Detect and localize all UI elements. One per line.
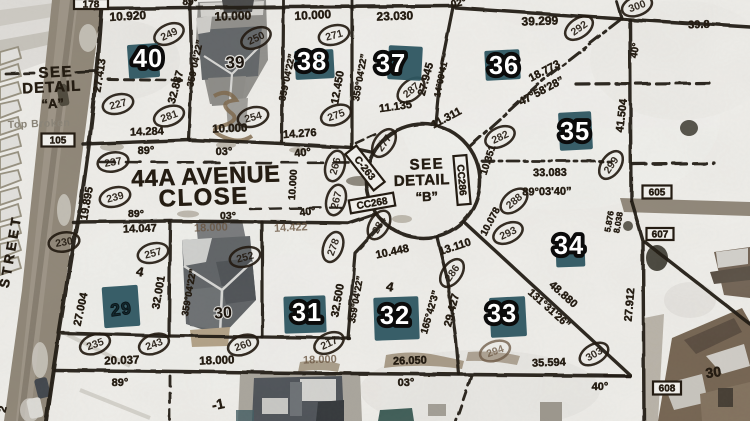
svg-text:30: 30 <box>214 304 233 322</box>
svg-text:40: 40 <box>133 45 163 73</box>
svg-text:03°: 03° <box>398 377 415 389</box>
svg-text:39: 39 <box>225 53 245 73</box>
svg-text:35.594: 35.594 <box>532 356 567 369</box>
svg-text:14.276: 14.276 <box>283 127 317 141</box>
svg-text:18.000: 18.000 <box>199 354 235 367</box>
svg-text:10.000: 10.000 <box>294 7 332 23</box>
svg-text:“A”: “A” <box>41 95 64 111</box>
svg-text:DETAIL: DETAIL <box>22 77 82 97</box>
svg-text:33: 33 <box>487 300 517 328</box>
svg-text:32: 32 <box>380 302 410 330</box>
svg-text:14.047: 14.047 <box>123 222 157 235</box>
svg-text:20.037: 20.037 <box>104 354 140 367</box>
svg-text:18.000: 18.000 <box>303 353 337 366</box>
svg-text:14.284: 14.284 <box>130 125 165 138</box>
svg-text:26.050: 26.050 <box>393 354 427 367</box>
svg-text:89°: 89° <box>138 145 155 157</box>
svg-text:35: 35 <box>560 118 590 146</box>
svg-text:39.8: 39.8 <box>688 19 710 32</box>
svg-text:608: 608 <box>659 384 676 395</box>
svg-text:10.000: 10.000 <box>287 169 300 201</box>
svg-text:89°: 89° <box>182 0 197 8</box>
svg-text:31: 31 <box>292 299 322 327</box>
svg-text:89°: 89° <box>112 377 129 389</box>
svg-text:605: 605 <box>649 188 666 199</box>
svg-text:14.422: 14.422 <box>274 221 308 235</box>
svg-text:03°: 03° <box>220 210 236 222</box>
svg-text:89°: 89° <box>128 208 144 220</box>
svg-text:40°: 40° <box>299 205 316 219</box>
svg-text:37: 37 <box>376 50 406 78</box>
svg-text:33.083: 33.083 <box>533 167 567 180</box>
svg-text:40°: 40° <box>592 381 609 393</box>
svg-text:34: 34 <box>554 232 584 260</box>
svg-text:29: 29 <box>109 298 133 321</box>
svg-text:10.920: 10.920 <box>109 8 147 24</box>
svg-text:18.000: 18.000 <box>194 221 228 234</box>
svg-text:30: 30 <box>704 363 722 381</box>
svg-text:“B”: “B” <box>415 189 438 205</box>
svg-text:178: 178 <box>83 0 100 11</box>
svg-text:03°: 03° <box>216 146 233 158</box>
svg-text:DETAIL: DETAIL <box>394 171 451 190</box>
svg-text:607: 607 <box>652 230 669 241</box>
svg-text:36: 36 <box>489 52 519 80</box>
svg-text:38: 38 <box>297 48 327 76</box>
svg-text:CLOSE: CLOSE <box>158 182 249 212</box>
svg-text:10.000: 10.000 <box>214 8 251 23</box>
svg-text:105: 105 <box>50 136 67 147</box>
svg-text:23.030: 23.030 <box>376 8 413 23</box>
svg-text:Top Broken: Top Broken <box>8 117 71 131</box>
svg-text:89°03'40”: 89°03'40” <box>522 186 571 199</box>
svg-text:39.299: 39.299 <box>521 13 558 28</box>
svg-text:40°: 40° <box>294 146 312 160</box>
